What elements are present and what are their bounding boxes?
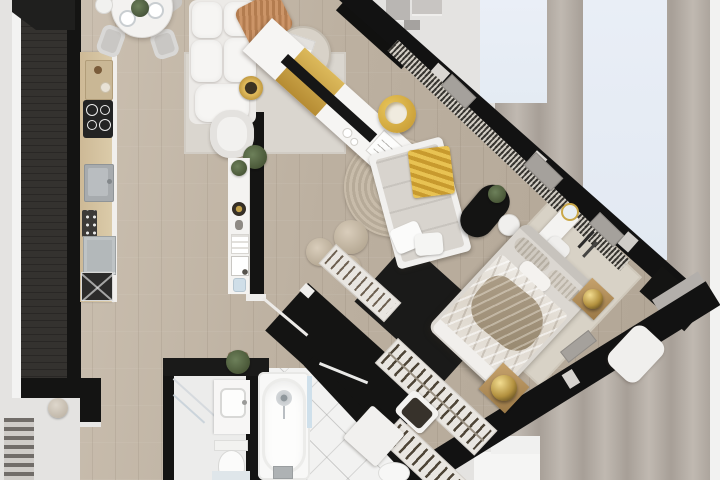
shelf-towels bbox=[231, 234, 249, 254]
burner bbox=[99, 119, 111, 131]
oil-bottle bbox=[94, 66, 102, 74]
left-wall-dark-band bbox=[21, 0, 67, 398]
burner bbox=[86, 104, 98, 116]
shelf-glass bbox=[233, 278, 246, 292]
gold-bowl bbox=[239, 76, 263, 100]
burner bbox=[100, 105, 110, 115]
saucer bbox=[349, 136, 360, 147]
sofa-cushion bbox=[191, 40, 222, 82]
bottom-left-wall-stub bbox=[80, 378, 101, 424]
chair-cushion bbox=[385, 102, 407, 124]
small-bowl bbox=[100, 82, 111, 93]
wc-left-wall bbox=[163, 368, 174, 480]
terrace-pouf bbox=[48, 398, 68, 418]
bathtub bbox=[258, 372, 310, 480]
burner bbox=[87, 120, 97, 130]
entry-step bbox=[412, 0, 442, 16]
shelf-art-print bbox=[231, 256, 249, 276]
shelf-plant bbox=[231, 160, 247, 176]
vanity-mirror bbox=[561, 203, 579, 221]
kitchen-sink bbox=[84, 164, 114, 202]
basin-faucet bbox=[242, 400, 247, 405]
wc-vanity bbox=[214, 380, 250, 434]
oven-control-panel bbox=[82, 210, 97, 237]
sink-basin bbox=[88, 168, 108, 196]
glass-panel-1 bbox=[480, 0, 547, 103]
bath-mat bbox=[212, 471, 250, 480]
gold-sphere-decor bbox=[491, 375, 517, 401]
side-table-plant bbox=[488, 185, 506, 203]
tub-glass-screen bbox=[307, 376, 312, 428]
gold-throw-blanket bbox=[408, 146, 456, 199]
cooktop bbox=[83, 100, 113, 138]
daybed-pillow bbox=[414, 232, 444, 256]
display-shelf bbox=[228, 158, 250, 294]
dinner-plate bbox=[147, 2, 164, 19]
shelf-vase bbox=[235, 220, 243, 230]
window-mullion bbox=[562, 369, 581, 389]
right-white-strip bbox=[710, 0, 720, 480]
gold-sphere-decor bbox=[583, 289, 603, 309]
tub-control bbox=[273, 466, 293, 479]
tub-drain bbox=[276, 390, 292, 406]
dishwasher bbox=[83, 236, 116, 275]
left-wall-inner-face bbox=[67, 0, 81, 398]
partition-plant bbox=[226, 350, 250, 374]
entry-step bbox=[404, 20, 420, 30]
bath-top-wall bbox=[163, 358, 269, 376]
shelf-bowl bbox=[232, 202, 246, 216]
gold-swivel-chair bbox=[378, 95, 416, 133]
left-wall-white-lining bbox=[12, 4, 21, 398]
sofa-cushion bbox=[192, 2, 222, 38]
bottom-steps bbox=[474, 452, 540, 480]
faucet bbox=[107, 179, 112, 184]
floor-plan-scene bbox=[0, 0, 720, 480]
exterior-stairs bbox=[4, 418, 34, 480]
washing-machine bbox=[81, 272, 113, 301]
stub-white-cap bbox=[80, 422, 101, 427]
toilet-bowl bbox=[378, 462, 410, 480]
